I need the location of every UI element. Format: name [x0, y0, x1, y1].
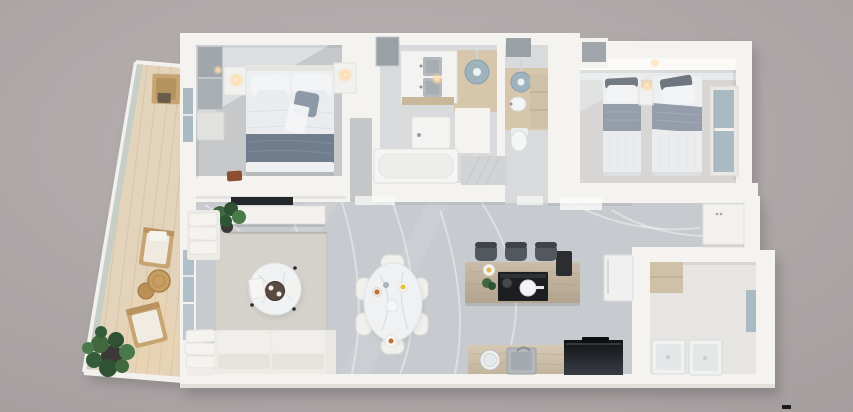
- wall-sink: [510, 97, 527, 111]
- ceiling-light-2: [650, 58, 660, 68]
- corridor-floor: [350, 118, 372, 202]
- twin-bed-left: [603, 76, 641, 176]
- headboard: [246, 65, 334, 72]
- bathtub: [374, 149, 458, 183]
- wall-laundry-left: [632, 247, 650, 374]
- bench: [227, 170, 243, 181]
- lounge-chair-top: [139, 227, 175, 269]
- bowl: [375, 290, 380, 295]
- bar-stools: [475, 242, 557, 261]
- sofa: [185, 329, 336, 376]
- upper-cabinet: [650, 262, 683, 293]
- ceiling-light: [213, 65, 223, 75]
- book: [249, 278, 266, 299]
- foot-blanket: [246, 134, 334, 164]
- oven: [564, 337, 623, 375]
- hall-mat: [461, 156, 507, 185]
- pendant-light: [431, 73, 443, 85]
- washing-machine: [652, 340, 685, 374]
- wall-right-laundry: [756, 250, 775, 376]
- wall-lamp: [640, 78, 654, 92]
- cup: [383, 282, 389, 288]
- kitchen-sink: [507, 348, 536, 375]
- laundry-window: [746, 290, 756, 332]
- balcony-bench: [152, 74, 181, 105]
- kitchen-counter: [468, 345, 572, 374]
- closet-door-panel: [582, 42, 606, 62]
- entry-cabinet: [703, 204, 744, 247]
- vanity-wood-shelf: [402, 97, 454, 105]
- pot: [520, 280, 536, 296]
- wall-bath2-bedroom2: [548, 33, 580, 183]
- pan: [502, 278, 512, 288]
- fridge: [604, 255, 633, 301]
- plate-egg: [401, 285, 406, 290]
- toilet: [511, 128, 528, 151]
- ceiling-panel: [517, 196, 543, 205]
- wall-lamp-right: [337, 67, 353, 83]
- wall-right-living: [744, 196, 760, 254]
- watermark-dash: [782, 405, 791, 409]
- twin-bedroom-window: [710, 86, 738, 176]
- chaise: [187, 210, 220, 260]
- vanity: [401, 51, 457, 105]
- wood-cabinet: [530, 74, 548, 128]
- mirror-cabinet: [376, 37, 399, 66]
- dryer: [689, 340, 722, 375]
- partition: [455, 108, 490, 153]
- dresser: [197, 112, 224, 140]
- plate-food: [389, 339, 394, 344]
- twin-bed-right: [652, 74, 702, 176]
- round-tray: [266, 282, 285, 301]
- tv: [231, 197, 293, 205]
- ceiling-panel: [355, 196, 395, 205]
- wardrobe: [197, 46, 223, 110]
- floorplan-image: [0, 0, 853, 412]
- double-bed: [246, 65, 334, 176]
- wall-lamp-left: [228, 72, 244, 88]
- plate: [487, 268, 492, 273]
- wall-laundry-top: [632, 247, 756, 262]
- teapot: [386, 300, 398, 312]
- mirror-cabinet-2: [506, 38, 531, 57]
- outer-wall-edge: [180, 384, 775, 388]
- ceiling-panel: [560, 197, 602, 210]
- cooktop: [498, 272, 548, 301]
- coffee-machine: [556, 251, 572, 276]
- floorplan-render: [0, 0, 853, 412]
- shower-tray: [412, 117, 450, 148]
